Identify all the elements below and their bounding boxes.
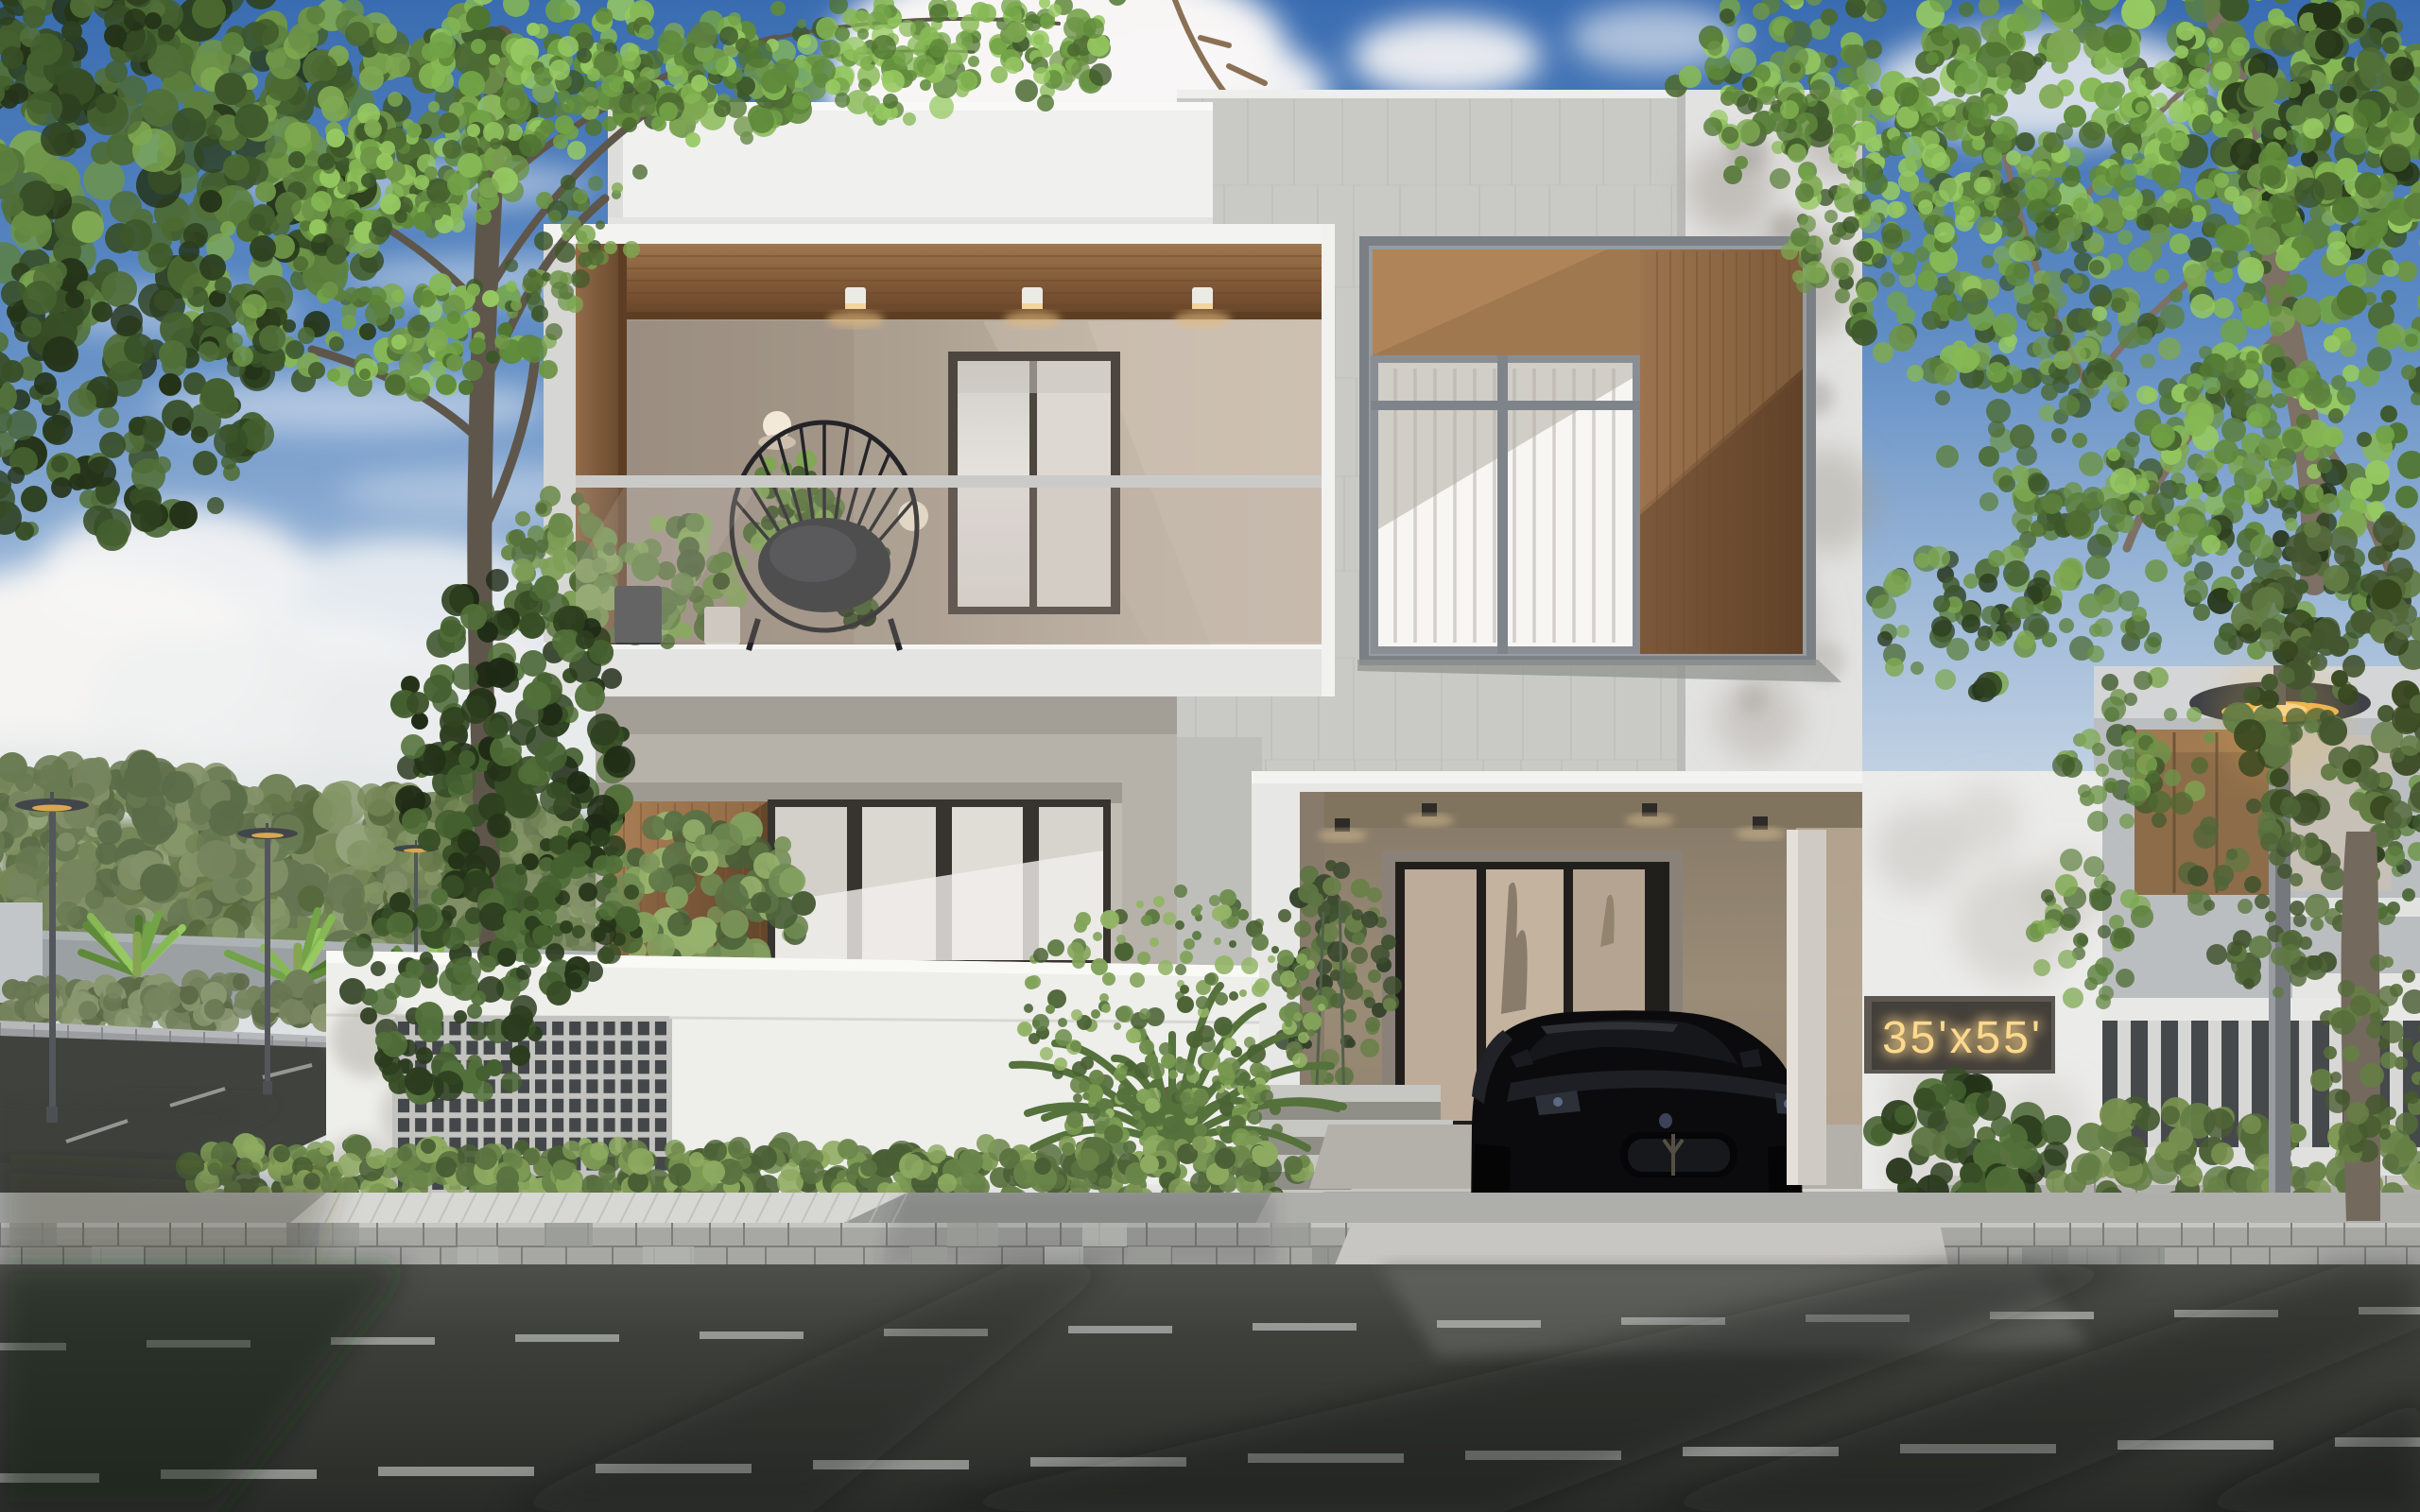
svg-text:35'x55': 35'x55' [1882, 1013, 2043, 1063]
